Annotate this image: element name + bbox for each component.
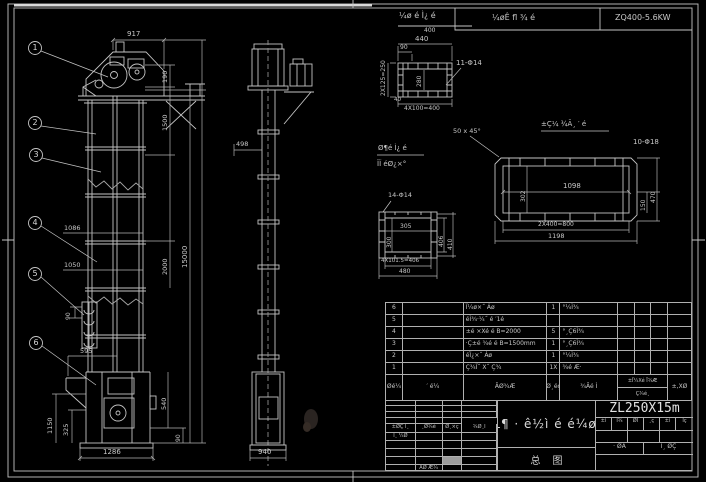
dim-302: 302	[521, 191, 527, 202]
dim-190: 190	[162, 71, 169, 83]
dim-1086: 1086	[64, 225, 81, 232]
table-row: 3 ·Ç±é ¾é é B=1500mm 1 °¸Ç6Ì¾	[386, 339, 692, 351]
dim-1098: 1098	[563, 183, 581, 190]
table-row: 1 Ç¾Ï˝ X˝ Ç¾ 1X ¾é Æ·	[386, 363, 692, 375]
dim-410: 410	[448, 239, 454, 250]
top-detail-scale: 400	[424, 28, 435, 34]
chamfer-note: 50 x 45°	[453, 128, 481, 135]
parts-list-table: 6 Ï¼ø×˝ Áø 1 °¼Ì¾ 5 éÌ¾·¼˝ é ′1é 4 ±é ×X…	[385, 302, 692, 401]
tb-label: Ï¸ ¼Ø	[386, 433, 416, 441]
title-block-model: ZL250X15m ±ì Ì¾ ØÏ ¸ç ±ì Ïç · ØÁ Ì¸ ØÇ	[596, 400, 693, 470]
dim-325: 325	[63, 424, 70, 436]
dim-90-flange: 90	[400, 45, 408, 51]
dim-305: 305	[400, 224, 411, 230]
dim-2000: 2000	[162, 258, 169, 275]
table-row: 2 éÏ¿×˝ Áø 1 °¼Ì¾	[386, 351, 692, 363]
top-detail-title: ¼ø é Ì¿ é	[399, 12, 436, 20]
title-block-main: ZL¶ · ê½ì é é¼ø ¿ 总图	[498, 400, 596, 470]
holes-14-d14: 14-Φ14	[388, 192, 412, 199]
dim-1500: 1500	[162, 114, 169, 131]
dim-280: 280	[417, 76, 423, 87]
table-row: 6 Ï¼ø×˝ Áø 1 °¼Ì¾	[386, 303, 692, 315]
side-view	[234, 40, 318, 466]
drawing-subtitle: 总图	[498, 447, 595, 470]
dim-15000: 15000	[182, 246, 189, 268]
cad-sheet: ¼ø é Ì¿ é 400 ¼øÊ fl ¾ é ZQ400-5.6KW 1 2…	[0, 0, 706, 482]
bom-no: 3	[386, 339, 403, 351]
table-row: 4 ±é ×Xé é B=2000 5 °¸Ç6Ì¾	[386, 327, 692, 339]
bom-header-remark: ±,XØ	[668, 375, 692, 401]
bom-desc: Ç¾Ï˝ X˝ Ç¾	[464, 363, 548, 375]
dim-300: 300	[387, 237, 393, 248]
dim-940: 940	[258, 449, 271, 456]
dim-1198: 1198	[548, 233, 565, 240]
bom-no: 2	[386, 351, 403, 363]
dim-90-right: 90	[176, 434, 182, 442]
dim-1150: 1150	[47, 417, 54, 434]
bom-no: 5	[386, 315, 403, 327]
dim-480: 480	[399, 269, 410, 275]
tb-label: ¸Ø¾é	[416, 424, 443, 433]
bom-qty: 1	[547, 303, 560, 315]
balloon-4: 4	[32, 219, 37, 227]
drawing-title: ZL¶ · ê½ì é é¼ø ¿	[498, 400, 595, 447]
dim-2x125: 2X125=250	[381, 60, 387, 96]
bom-header-weight: ±Ï¼Xé Ï¾Æ Ç¾é¸	[618, 375, 668, 401]
square-detail-subtitle: ÏÏ éØ¿×°	[377, 161, 406, 168]
bom-header-code: ′ é¼	[403, 375, 464, 401]
title-block: ±ØÇ Ï¸ ¸Ø¾é Ø¸×ç ¾Ø¸Ï Ï¸ ¼Ø ÁØ Æ¾ ZL¶ · …	[385, 400, 692, 471]
dim-470: 470	[651, 192, 657, 203]
dim-917: 917	[127, 31, 140, 38]
dim-90-bucket: 90	[66, 312, 72, 320]
bom-header-material: ¾Ãé Ì	[560, 375, 618, 401]
title-block-signature-grid: ±ØÇ Ï¸ ¸Ø¾é Ø¸×ç ¾Ø¸Ï Ï¸ ¼Ø ÁØ Æ¾	[386, 400, 498, 470]
bom-desc: Ï¼ø×˝ Áø	[464, 303, 548, 315]
bom-no: 4	[386, 327, 403, 339]
balloon-5: 5	[32, 270, 37, 278]
balloon-6: 6	[33, 339, 38, 347]
dim-595: 595	[80, 348, 92, 355]
bom-header-no: Øé¼	[386, 375, 403, 401]
dim-4x100: 4X100=400	[404, 106, 440, 112]
table-row: 5 éÌ¾·¼˝ é ′1é	[386, 315, 692, 327]
holes-11-d14: 11-Φ14	[456, 60, 482, 67]
dim-1050: 1050	[64, 262, 81, 269]
holes-10-d18: 10-Φ18	[633, 139, 659, 146]
dim-498: 498	[236, 141, 248, 148]
bom-mat: °¼Ì¾	[560, 303, 618, 315]
dim-1286: 1286	[103, 449, 121, 456]
balloon-markers	[29, 42, 109, 386]
square-detail-title: Ø¶é Ì¿ é	[378, 145, 407, 152]
tb-label: ¾Ø¸Ï	[462, 424, 497, 433]
dim-406: 406	[439, 236, 445, 247]
dim-2x400: 2X400=800	[538, 222, 574, 228]
dim-540: 540	[161, 398, 168, 410]
dim-4x101: 4X101.5=406	[381, 259, 419, 265]
signature-mark	[443, 457, 463, 465]
table-header-row: Øé¼ ′ é¼ ÃØ¾Æ Ø¸éç ¾Ãé Ì ±Ï¼Xé Ï¾Æ Ç¾é¸ …	[386, 375, 692, 401]
balloon-2: 2	[32, 119, 37, 127]
bom-header-qty: Ø¸éç	[547, 375, 560, 401]
balloon-3: 3	[33, 151, 38, 159]
bom-header-name: ÃØ¾Æ	[464, 375, 548, 401]
header-field-label: ¼øÊ fl ¾ é	[492, 14, 535, 22]
dim-40: 40	[394, 98, 401, 104]
balloon-1: 1	[32, 44, 37, 52]
bom-no: 6	[386, 303, 403, 315]
bom-code	[403, 303, 464, 315]
bom-no: 1	[386, 363, 403, 375]
tb-label: ÁØ Æ¾	[416, 465, 443, 471]
dim-440: 440	[415, 36, 428, 43]
bom-desc: ±é ×Xé é B=2000	[464, 327, 548, 339]
dim-150: 150	[641, 200, 647, 211]
tb-label: ±ØÇ Ï¸	[386, 424, 416, 433]
bom-desc: éÏ¿×˝ Áø	[464, 351, 548, 363]
tb-label: Ø¸×ç	[443, 424, 463, 433]
bom-desc: éÌ¾·¼˝ é ′1é	[464, 315, 548, 327]
model-number: ZL250X15m	[596, 400, 693, 418]
bom-desc: ·Ç±é ¾é é B=1500mm	[464, 339, 548, 351]
header-drive-model: ZQ400-5.6KW	[615, 14, 671, 22]
long-detail-title: ±Ç¼ ¾Ã¸ ′ é	[541, 121, 586, 128]
